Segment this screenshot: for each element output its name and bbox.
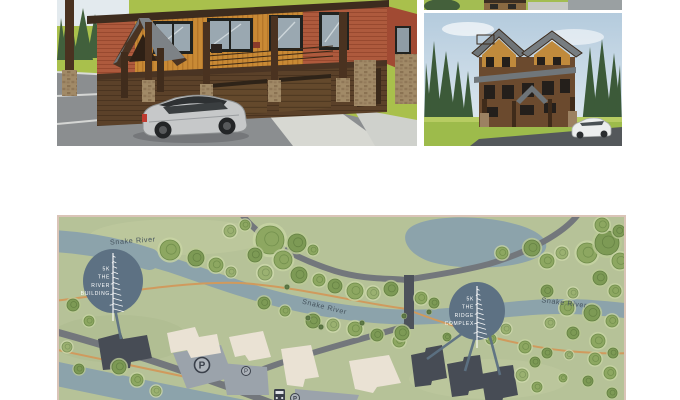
tree-icon [186, 248, 206, 268]
marker-label-line: BUILDING [81, 291, 110, 297]
tree-icon [382, 280, 400, 298]
tree-icon [540, 346, 553, 359]
tree-icon [60, 340, 73, 353]
tree-icon [311, 272, 327, 288]
tree-icon [278, 304, 291, 317]
parking-icon-cropped: P [291, 394, 300, 400]
tree-icon [427, 296, 440, 309]
tree-icon [222, 223, 238, 239]
hero-rendering-image [57, 0, 417, 146]
tree-icon [581, 374, 594, 387]
tree-icon [149, 384, 162, 397]
tree-icon [605, 386, 618, 399]
tree-icon [530, 380, 543, 393]
existing-building-footprint [349, 355, 401, 393]
tree-icon [256, 264, 274, 282]
tree-icon [522, 238, 542, 258]
tree-icon [607, 283, 623, 299]
svg-text:P: P [293, 396, 297, 400]
marker-label-line: THE [462, 305, 474, 311]
tree-icon [318, 324, 324, 330]
tree-icon [514, 367, 530, 383]
marker-label-line: RIVER [91, 283, 110, 289]
tail-light [142, 114, 147, 122]
tree-icon [110, 358, 128, 376]
thumbnail-strip-panel[interactable] [424, 0, 622, 10]
hero-rendering-panel[interactable] [57, 0, 417, 146]
ridge-rendering-image [424, 13, 622, 146]
ridge-rendering-panel[interactable] [424, 13, 622, 146]
site-map-panel[interactable]: P PP 5KTHERIVERBUILDING5KTHERIDGECOMPLEX… [57, 215, 626, 400]
tree-icon [246, 246, 264, 264]
tree-icon [538, 252, 556, 270]
tree-icon [345, 281, 365, 301]
bus-icon [274, 389, 285, 400]
tree-icon [369, 327, 385, 343]
tree-icon [426, 309, 432, 315]
tree-icon [365, 285, 381, 301]
tree-icon [72, 362, 85, 375]
tree-icon [325, 317, 341, 333]
existing-building-footprint [229, 331, 271, 361]
tree-icon [543, 316, 556, 329]
walkway-fragment [528, 2, 568, 10]
tree-icon [289, 265, 309, 285]
tree-icon [207, 256, 225, 274]
planter [253, 42, 260, 48]
tree-icon [82, 314, 95, 327]
tree-icon [284, 284, 290, 290]
thumbnail-strip-image [424, 0, 622, 10]
tree-icon [393, 324, 411, 342]
tree-icon [554, 245, 570, 261]
marker-label-line: COMPLEX [445, 321, 474, 327]
svg-text:P: P [244, 369, 248, 375]
tree-icon [604, 313, 620, 329]
tree-icon [587, 351, 603, 367]
parking-icon: P [242, 367, 251, 376]
tree-icon [256, 295, 272, 311]
tree-icon [401, 313, 407, 319]
tree-icon [494, 245, 510, 261]
tree-icon [157, 237, 182, 262]
tree-icon [558, 373, 569, 384]
parking-lot [295, 389, 359, 400]
grill [211, 44, 222, 53]
tree-icon [589, 332, 607, 350]
tree-icon [306, 243, 319, 256]
tree-icon [565, 325, 581, 341]
tree-icon [591, 269, 609, 287]
tree-icon [517, 339, 533, 355]
tree-icon [359, 320, 365, 326]
bush [424, 0, 460, 10]
tree-icon [564, 350, 575, 361]
page: P PP 5KTHERIVERBUILDING5KTHERIDGECOMPLEX… [0, 0, 680, 400]
parking-icon: P [195, 358, 210, 373]
tree-icon [606, 346, 619, 359]
marker-label-line: THE [98, 275, 110, 281]
tree-icon [272, 249, 295, 272]
marker-label-line: RIDGE [455, 313, 474, 319]
marker-label-line: 5K [102, 267, 110, 273]
tree-icon [305, 315, 311, 321]
tree-icon [602, 365, 618, 381]
site-map-image: P PP 5KTHERIVERBUILDING5KTHERIDGECOMPLEX… [59, 217, 624, 400]
svg-text:P: P [199, 361, 206, 372]
tree-icon [528, 355, 541, 368]
tree-icon [238, 218, 251, 231]
cloud [442, 22, 494, 36]
tree-icon [413, 290, 429, 306]
tree-icon [65, 297, 81, 313]
tree-icon [326, 277, 344, 295]
driveway-fragment [568, 0, 622, 10]
tree-icon [129, 372, 145, 388]
tree-icon [224, 265, 237, 278]
marker-label-line: 5K [466, 297, 474, 303]
